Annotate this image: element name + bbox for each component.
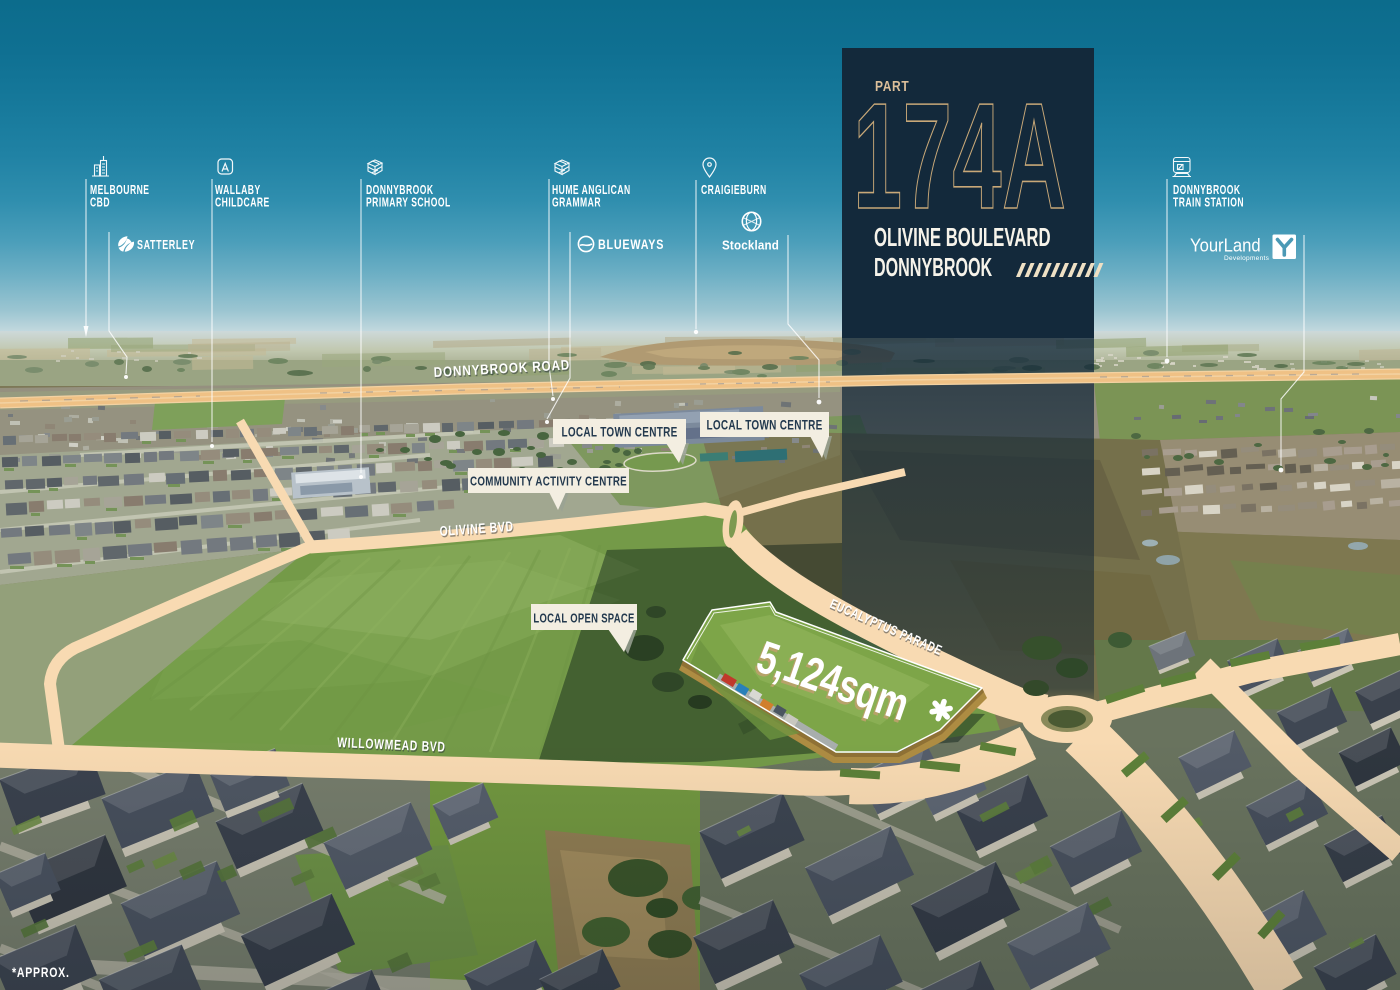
svg-text:CRAIGIEBURN: CRAIGIEBURN: [701, 183, 767, 197]
svg-text:GRAMMAR: GRAMMAR: [552, 196, 601, 210]
svg-text:PRIMARY SCHOOL: PRIMARY SCHOOL: [366, 196, 451, 210]
svg-text:Stockland: Stockland: [722, 238, 779, 253]
svg-text:CHILDCARE: CHILDCARE: [215, 196, 270, 210]
svg-text:LOCAL TOWN CENTRE: LOCAL TOWN CENTRE: [561, 424, 677, 440]
svg-text:*APPROX.: *APPROX.: [12, 965, 70, 981]
svg-text:LOCAL OPEN SPACE: LOCAL OPEN SPACE: [533, 612, 634, 626]
svg-text:DONNYBROOK: DONNYBROOK: [874, 252, 992, 282]
svg-text:BLUEWAYS: BLUEWAYS: [598, 237, 664, 253]
svg-text:YourLand: YourLand: [1190, 235, 1261, 256]
svg-text:OLIVINE BOULEVARD: OLIVINE BOULEVARD: [874, 222, 1051, 252]
svg-text:SATTERLEY: SATTERLEY: [137, 239, 195, 253]
svg-text:LOCAL TOWN CENTRE: LOCAL TOWN CENTRE: [706, 417, 822, 433]
svg-text:TRAIN STATION: TRAIN STATION: [1173, 196, 1244, 210]
svg-text:CBD: CBD: [90, 196, 110, 210]
svg-text:Developments: Developments: [1224, 255, 1270, 262]
svg-text:174A: 174A: [853, 73, 1066, 241]
svg-text:COMMUNITY ACTIVITY CENTRE: COMMUNITY ACTIVITY CENTRE: [470, 474, 627, 489]
